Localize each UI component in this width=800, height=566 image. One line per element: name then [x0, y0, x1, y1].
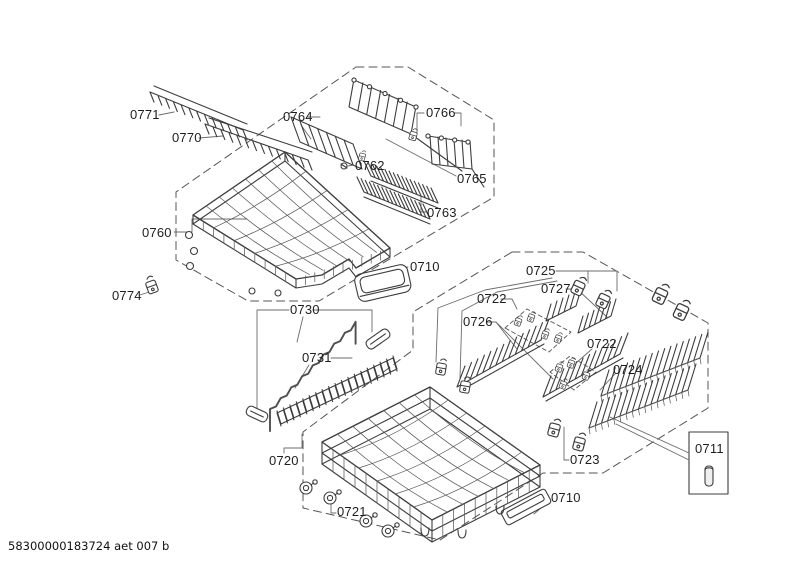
part-label-0722-lower: 0722 — [587, 337, 617, 351]
part-label-0731: 0731 — [302, 351, 332, 365]
part-label-0730: 0730 — [290, 303, 320, 317]
part-label-0722-upper: 0722 — [477, 292, 507, 306]
part-label-0721: 0721 — [337, 505, 367, 519]
part-label-0720: 0720 — [269, 454, 299, 468]
parts-diagram-page: 0771 0770 0764 0766 0762 0765 0763 0760 … — [0, 0, 800, 566]
part-label-0771: 0771 — [130, 108, 160, 122]
part-label-0764: 0764 — [283, 110, 313, 124]
part-label-0766: 0766 — [426, 106, 456, 120]
part-label-0765: 0765 — [457, 172, 487, 186]
part-label-0711: 0711 — [695, 442, 724, 456]
part-label-0770: 0770 — [172, 131, 202, 145]
part-label-0774: 0774 — [112, 289, 142, 303]
exploded-parts-drawing — [0, 0, 800, 566]
part-label-0710-bottom: 0710 — [551, 491, 581, 505]
document-number: 58300000183724 aet 007 b — [8, 539, 169, 553]
part-label-0710-top: 0710 — [410, 260, 440, 274]
part-label-0725: 0725 — [526, 264, 556, 278]
part-label-0763: 0763 — [427, 206, 457, 220]
part-label-0727: 0727 — [541, 282, 571, 296]
part-label-0723: 0723 — [570, 453, 600, 467]
part-label-0762: 0762 — [355, 159, 385, 173]
parts-artwork — [144, 78, 713, 542]
upper-assembly-outline — [176, 67, 494, 301]
part-label-0724: 0724 — [613, 363, 643, 377]
part-label-0760: 0760 — [142, 226, 172, 240]
clip-group-outline-upper — [505, 309, 571, 352]
part-label-0726: 0726 — [463, 315, 493, 329]
